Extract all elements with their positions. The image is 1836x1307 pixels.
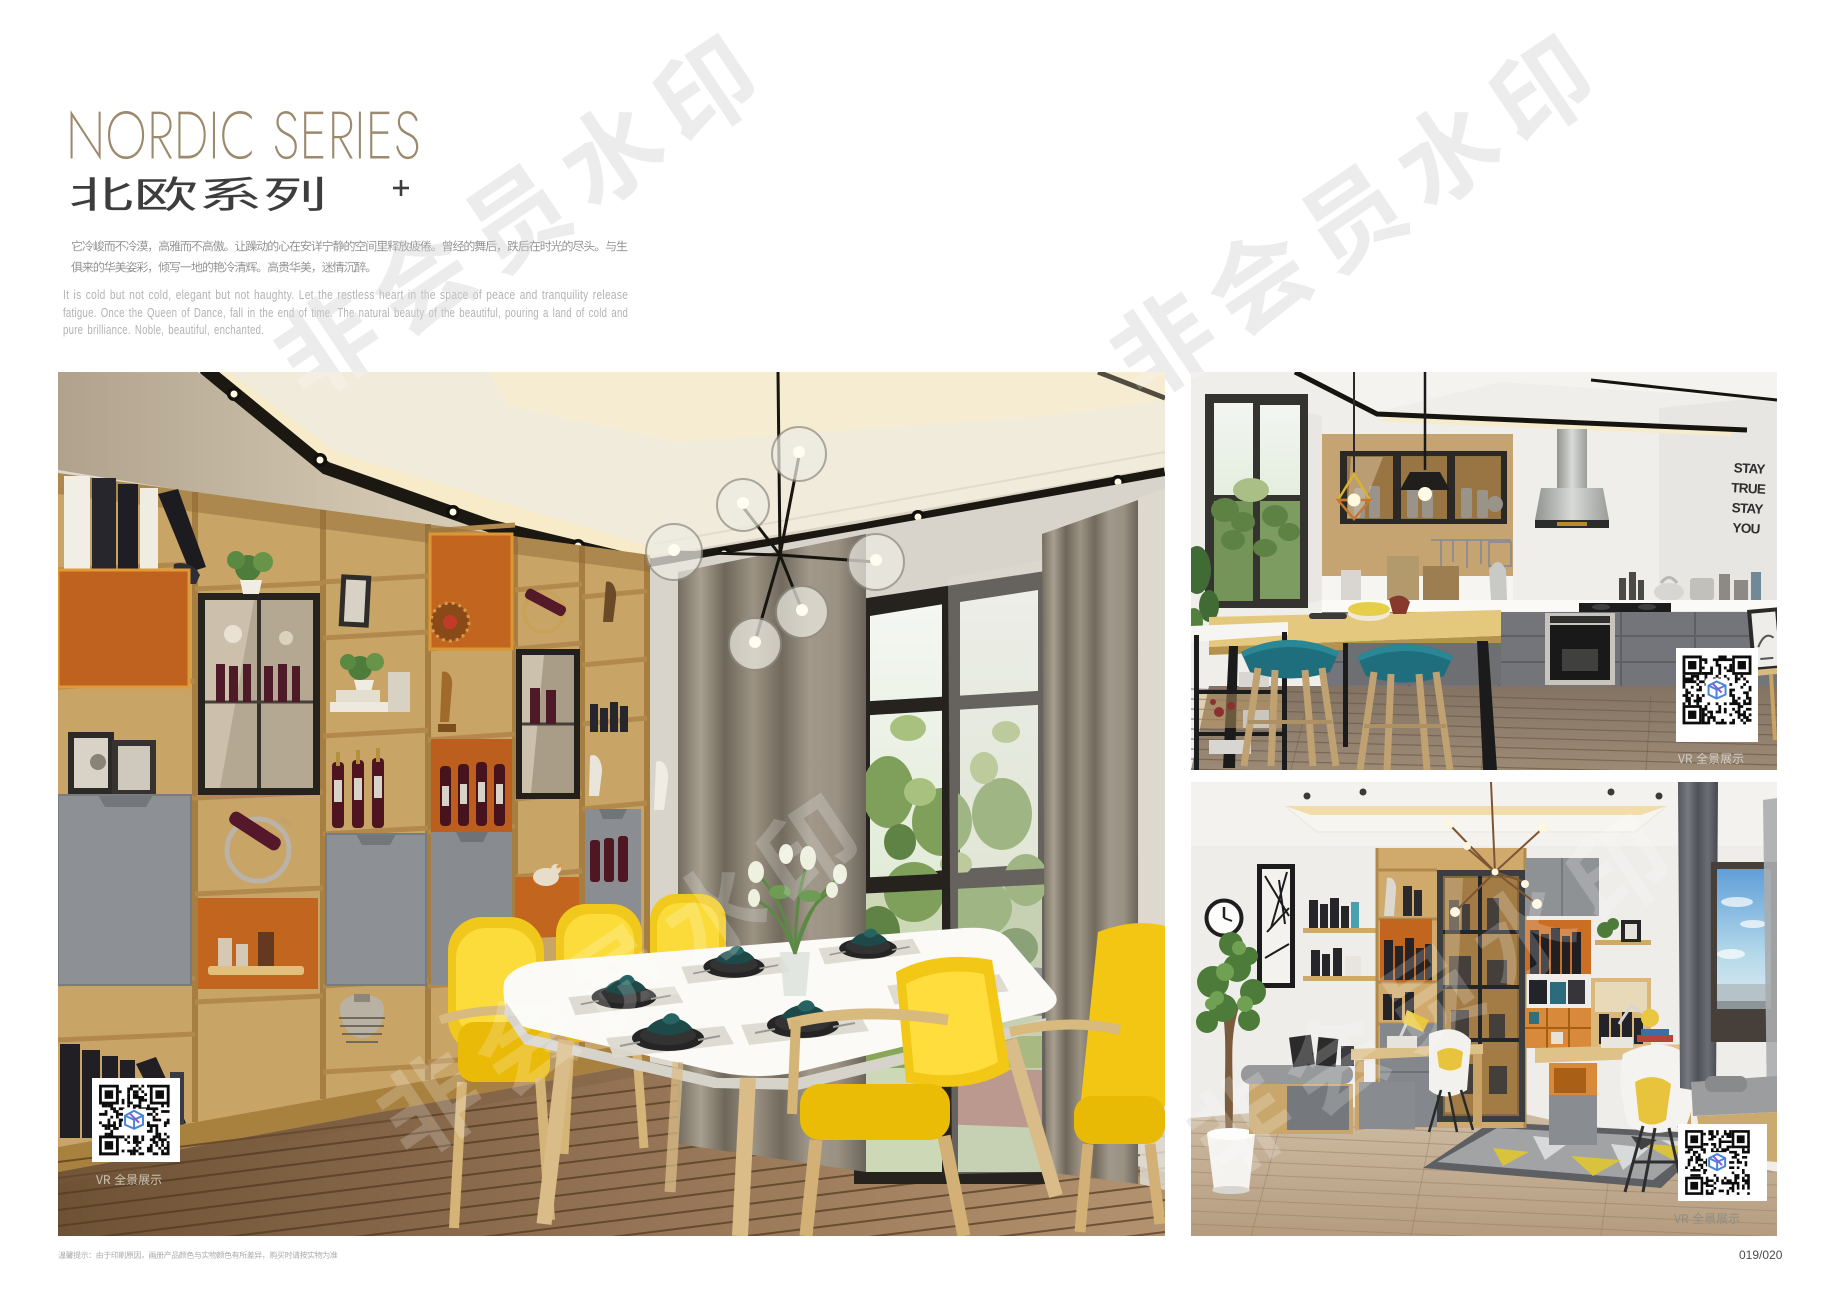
svg-text:STAY: STAY <box>1733 460 1765 477</box>
svg-text:TRUE: TRUE <box>1731 480 1766 497</box>
svg-text:YOU: YOU <box>1732 520 1760 536</box>
svg-text:STAY: STAY <box>1731 500 1763 517</box>
